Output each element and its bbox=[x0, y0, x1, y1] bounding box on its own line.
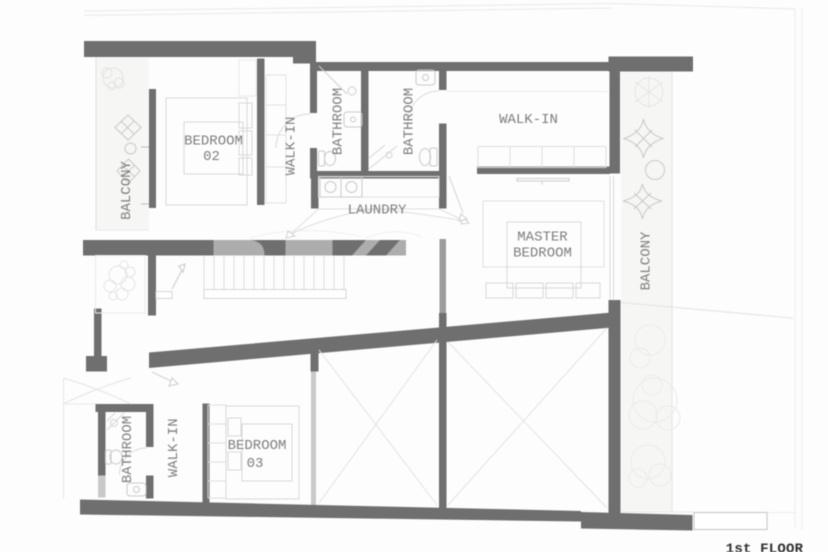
svg-text:WALK-IN: WALK-IN bbox=[499, 112, 558, 128]
svg-text:BALCONY: BALCONY bbox=[639, 231, 655, 290]
svg-text:BATHROOM: BATHROOM bbox=[331, 88, 347, 155]
svg-text:BATHROOM: BATHROOM bbox=[402, 88, 418, 155]
svg-text:1st FLOOR: 1st FLOOR bbox=[726, 542, 804, 552]
svg-text:BEDROOM: BEDROOM bbox=[228, 438, 287, 454]
svg-text:BEDROOM: BEDROOM bbox=[513, 246, 572, 262]
svg-text:WALK-IN: WALK-IN bbox=[166, 418, 182, 477]
svg-text:MASTER: MASTER bbox=[517, 230, 568, 246]
svg-text:LAUNDRY: LAUNDRY bbox=[348, 203, 407, 219]
svg-text:BEDROOM: BEDROOM bbox=[184, 134, 243, 150]
svg-text:02: 02 bbox=[203, 149, 220, 165]
svg-text:WALK-IN: WALK-IN bbox=[284, 117, 300, 176]
svg-text:03: 03 bbox=[247, 456, 264, 472]
svg-text:BATHROOM: BATHROOM bbox=[120, 416, 136, 483]
svg-text:BALCONY: BALCONY bbox=[119, 160, 135, 219]
